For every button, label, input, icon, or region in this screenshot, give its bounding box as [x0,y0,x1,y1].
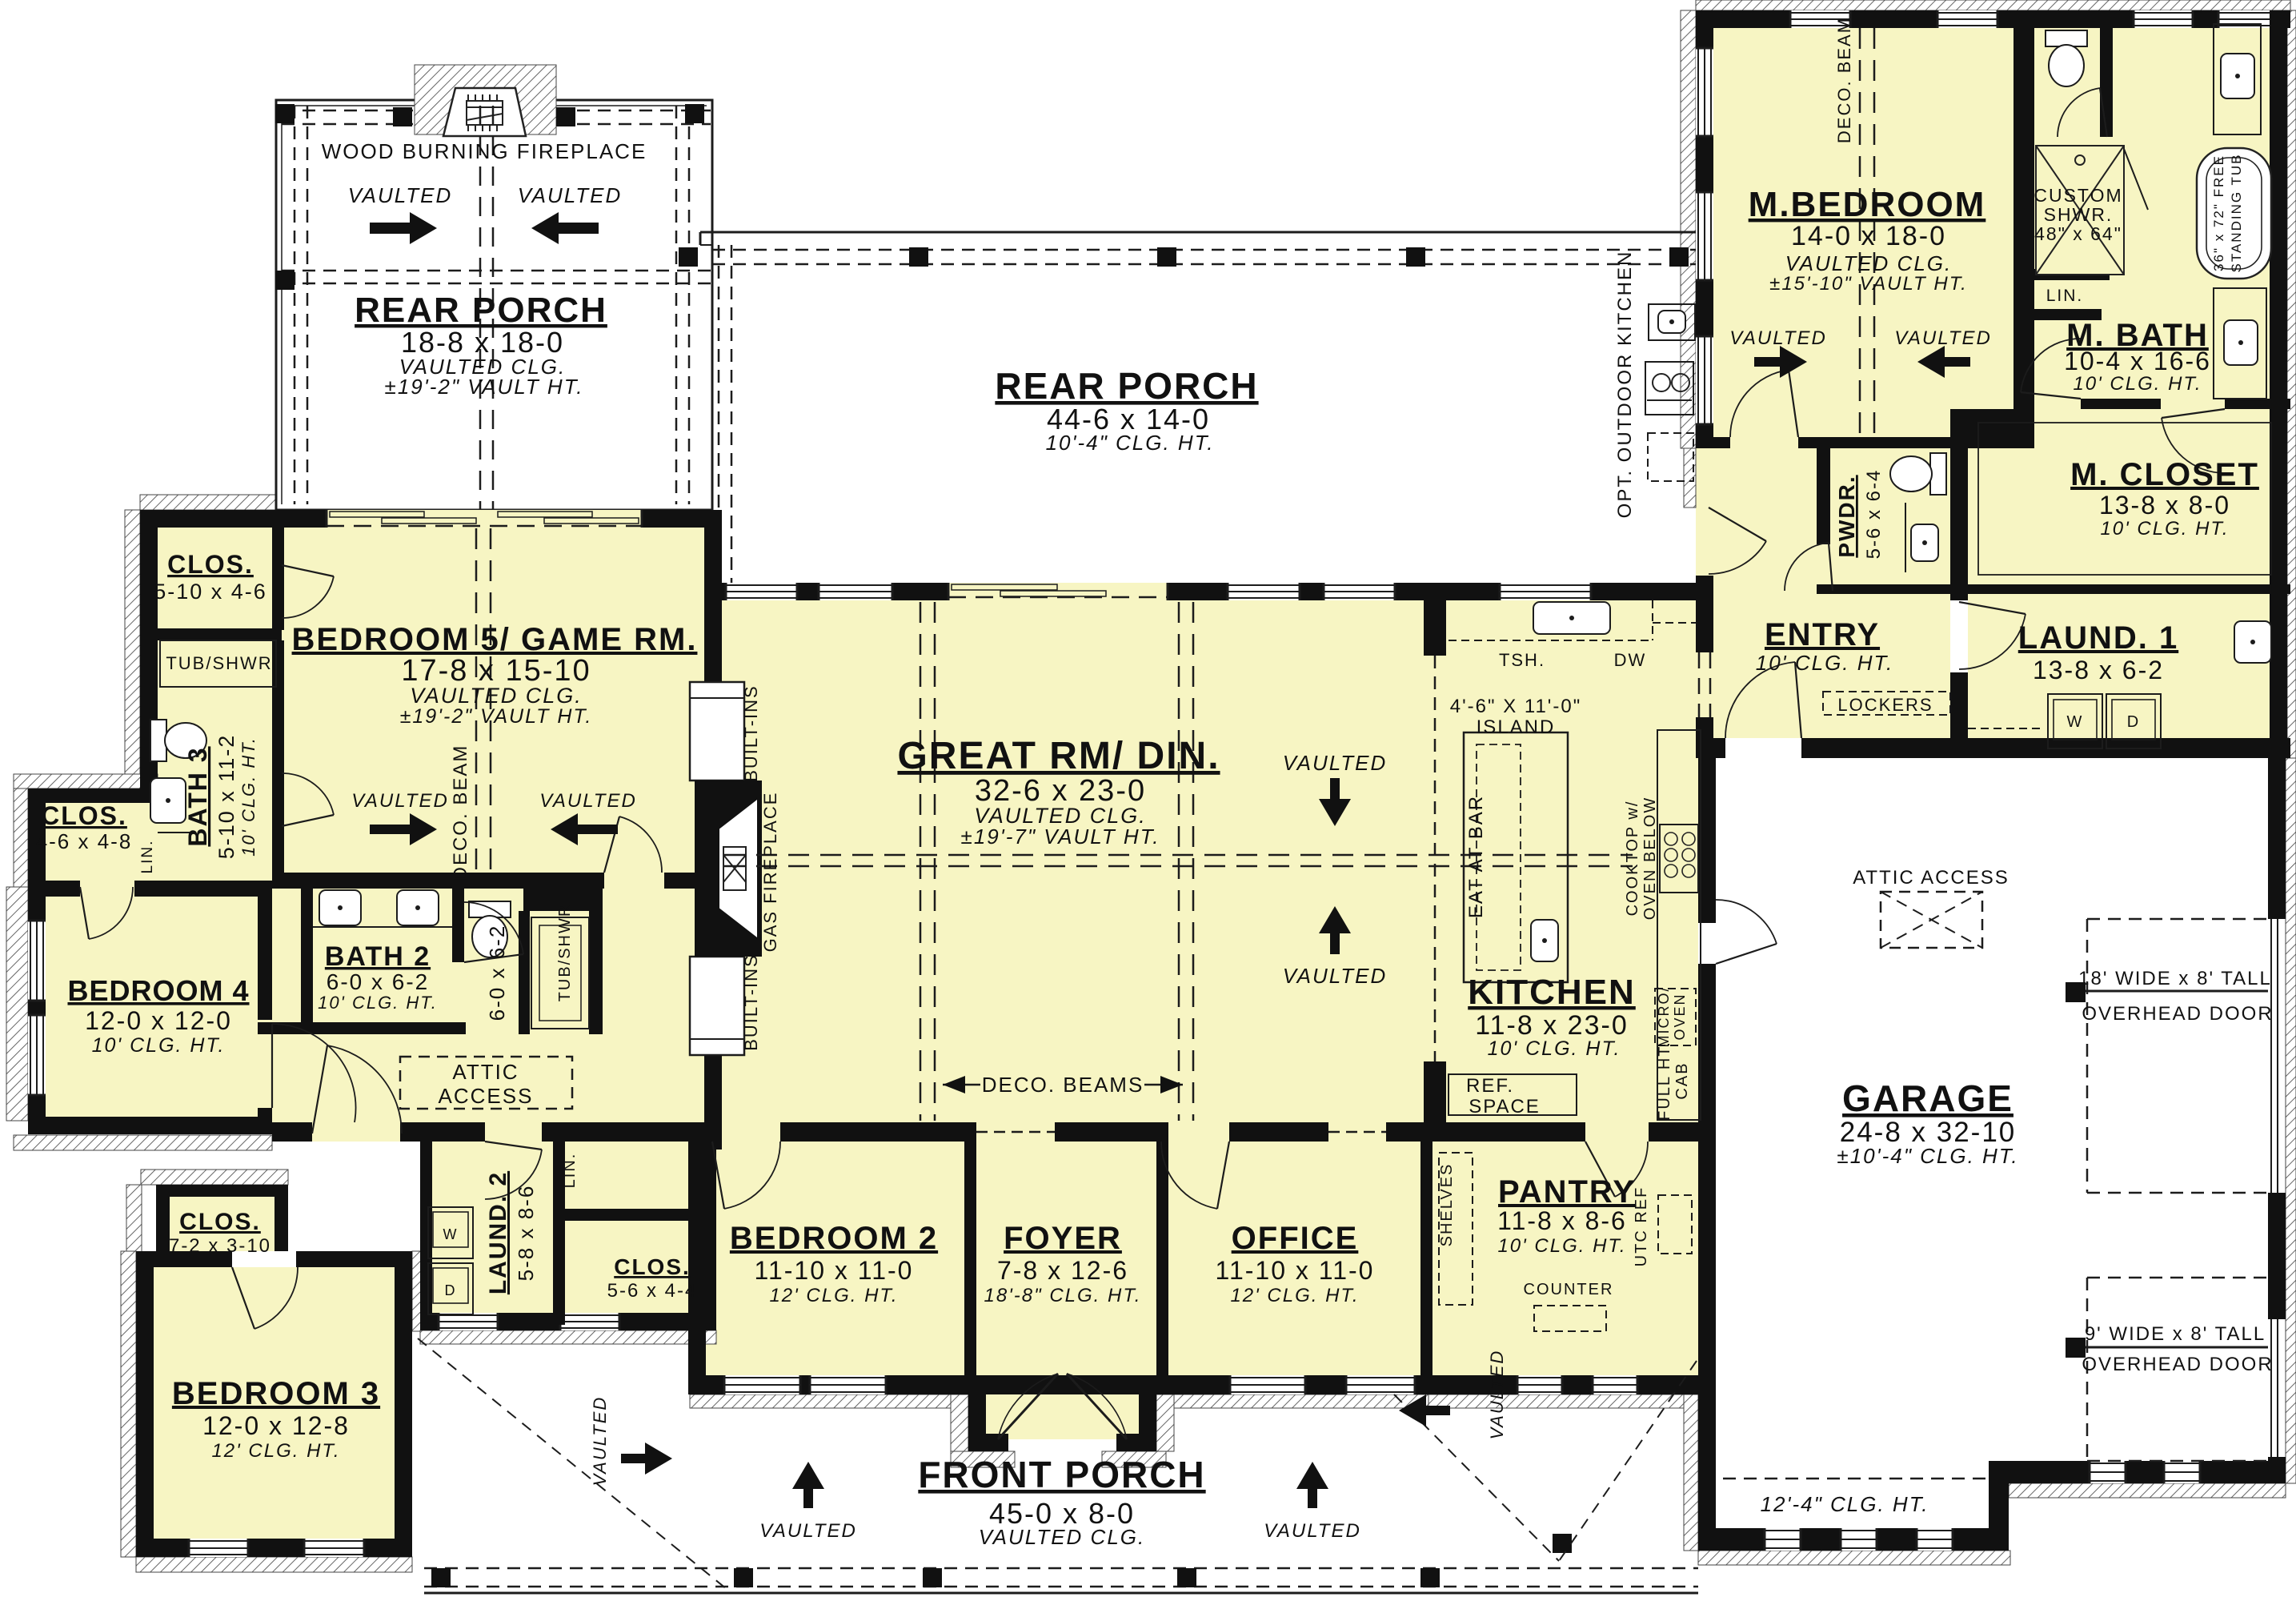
svg-text:18-8 x 18-0: 18-8 x 18-0 [401,326,564,359]
svg-text:10-4 x 16-6: 10-4 x 16-6 [2064,347,2211,375]
svg-text:BEDROOM 4: BEDROOM 4 [67,974,249,1007]
svg-text:7-2 x 3-10: 7-2 x 3-10 [169,1235,271,1257]
svg-text:FULL HT.: FULL HT. [1656,1041,1673,1121]
svg-text:VAULTED: VAULTED [539,790,637,812]
svg-text:UTC REF: UTC REF [1633,1186,1650,1267]
svg-text:11-10 x 11-0: 11-10 x 11-0 [755,1256,914,1285]
svg-text:W: W [2067,713,2084,731]
svg-text:12'-4" CLG. HT.: 12'-4" CLG. HT. [1761,1492,1929,1516]
svg-text:DECO. BEAM: DECO. BEAM [1834,17,1854,143]
svg-text:OVEN BELOW: OVEN BELOW [1641,796,1659,920]
svg-text:LIN.: LIN. [139,840,156,874]
svg-text:±19'-2" VAULT HT.: ±19'-2" VAULT HT. [385,375,584,399]
svg-text:PWDR.: PWDR. [1834,475,1859,557]
svg-text:±15'-10" VAULT HT.: ±15'-10" VAULT HT. [1769,273,1968,295]
svg-text:5-6 x 6-4: 5-6 x 6-4 [1863,469,1885,560]
svg-text:OVERHEAD DOOR: OVERHEAD DOOR [2082,1003,2273,1025]
svg-text:48" x 64": 48" x 64" [2034,223,2122,244]
svg-text:5-10 x 4-6: 5-10 x 4-6 [154,580,267,604]
svg-text:12-0 x 12-8: 12-0 x 12-8 [202,1411,350,1440]
svg-text:VAULTED: VAULTED [351,790,449,812]
svg-text:10' CLG. HT.: 10' CLG. HT. [318,993,438,1013]
svg-text:13-8 x 8-0: 13-8 x 8-0 [2099,491,2230,520]
svg-text:PANTRY: PANTRY [1498,1174,1636,1210]
svg-text:32-6 x 23-0: 32-6 x 23-0 [975,774,1146,808]
svg-text:VAULTED: VAULTED [1264,1520,1361,1542]
svg-text:GREAT RM/ DIN.: GREAT RM/ DIN. [897,735,1220,777]
svg-text:BATH 2: BATH 2 [325,941,431,972]
svg-text:10' CLG. HT.: 10' CLG. HT. [1497,1235,1626,1257]
svg-text:W: W [443,1226,459,1242]
svg-text:CLOS.: CLOS. [167,550,254,579]
svg-text:STANDING TUB: STANDING TUB [2229,154,2244,273]
svg-text:12-0 x 12-0: 12-0 x 12-0 [85,1006,232,1035]
svg-text:ATTIC: ATTIC [452,1060,519,1084]
svg-text:LAUND. 2: LAUND. 2 [485,1171,511,1294]
svg-text:6-0 x 6-2: 6-0 x 6-2 [327,969,430,994]
svg-text:4-6 x 4-8: 4-6 x 4-8 [36,829,133,853]
svg-text:M.BEDROOM: M.BEDROOM [1749,185,1986,224]
svg-text:TSH.: TSH. [1499,650,1545,670]
svg-text:36" x 72" FREE: 36" x 72" FREE [2211,154,2226,271]
svg-text:ACCESS: ACCESS [439,1084,534,1108]
svg-text:OFFICE: OFFICE [1232,1221,1359,1256]
svg-text:LOCKERS: LOCKERS [1837,695,1933,715]
svg-text:BUILT-INS: BUILT-INS [741,953,761,1051]
svg-text:13-8 x 6-2: 13-8 x 6-2 [2033,656,2164,684]
svg-text:LIN.: LIN. [2046,287,2084,305]
svg-text:COUNTER: COUNTER [1524,1281,1614,1298]
svg-text:VAULTED: VAULTED [1487,1350,1507,1440]
svg-text:18' WIDE x 8' TALL: 18' WIDE x 8' TALL [2078,968,2272,989]
svg-text:VAULTED: VAULTED [1283,964,1388,988]
svg-text:DW: DW [1614,650,1647,670]
svg-text:12' CLG. HT.: 12' CLG. HT. [769,1285,898,1306]
svg-text:12' CLG. HT.: 12' CLG. HT. [1230,1285,1359,1306]
svg-text:OPT. OUTDOOR KITCHEN: OPT. OUTDOOR KITCHEN [1614,251,1636,519]
svg-text:11-8 x 8-6: 11-8 x 8-6 [1497,1206,1627,1235]
svg-text:12' CLG. HT.: 12' CLG. HT. [211,1440,340,1462]
svg-text:5-10 x 11-2: 5-10 x 11-2 [214,734,238,860]
svg-text:REF.: REF. [1466,1075,1514,1097]
svg-text:OVEN: OVEN [1672,993,1688,1040]
svg-text:VAULTED: VAULTED [518,183,623,207]
svg-text:DECO. BEAM: DECO. BEAM [450,744,471,881]
svg-text:FOYER: FOYER [1004,1221,1122,1256]
svg-text:5-8 x 8-6: 5-8 x 8-6 [514,1185,538,1282]
svg-text:7-8 x 12-6: 7-8 x 12-6 [997,1256,1128,1285]
svg-text:±19'-2" VAULT HT.: ±19'-2" VAULT HT. [400,705,593,728]
svg-text:KITCHEN: KITCHEN [1468,973,1636,1012]
svg-text:SHWR.: SHWR. [2044,204,2114,225]
svg-text:BUILT-INS: BUILT-INS [741,684,761,782]
svg-text:10' CLG. HT.: 10' CLG. HT. [2100,518,2229,540]
svg-text:±10'-4" CLG. HT.: ±10'-4" CLG. HT. [1837,1144,2018,1168]
svg-text:18'-8" CLG. HT.: 18'-8" CLG. HT. [984,1285,1142,1306]
svg-text:MICRO/: MICRO/ [1656,986,1672,1048]
svg-text:ATTIC ACCESS: ATTIC ACCESS [1853,867,2010,889]
svg-text:REAR PORCH: REAR PORCH [995,365,1258,407]
svg-text:CLOS.: CLOS. [41,801,127,830]
svg-text:10' CLG. HT.: 10' CLG. HT. [92,1034,226,1057]
svg-text:10' CLG. HT.: 10' CLG. HT. [1756,651,1894,675]
svg-text:BEDROOM 5/ GAME RM.: BEDROOM 5/ GAME RM. [292,622,698,657]
svg-text:CLOS.: CLOS. [179,1209,261,1235]
svg-text:VAULTED: VAULTED [1894,327,1992,349]
svg-text:11-10 x 11-0: 11-10 x 11-0 [1216,1256,1375,1285]
svg-text:LIN.: LIN. [561,1153,579,1189]
svg-text:LAUND. 1: LAUND. 1 [2018,620,2178,656]
svg-text:OVERHEAD DOOR: OVERHEAD DOOR [2082,1354,2273,1375]
svg-text:CLOS.: CLOS. [614,1254,691,1279]
svg-text:6-0 x 6-2: 6-0 x 6-2 [485,925,509,1021]
svg-text:M. CLOSET: M. CLOSET [2070,457,2259,492]
svg-text:BEDROOM 2: BEDROOM 2 [730,1221,938,1256]
svg-text:17-8 x 15-10: 17-8 x 15-10 [401,654,591,688]
svg-text:10' CLG. HT.: 10' CLG. HT. [1488,1037,1621,1060]
svg-text:10' CLG. HT.: 10' CLG. HT. [238,736,258,857]
svg-text:GARAGE: GARAGE [1842,1077,2014,1119]
svg-text:5-6 x 4-4: 5-6 x 4-4 [607,1280,698,1302]
svg-text:VAULTED: VAULTED [1283,751,1388,775]
svg-text:SHELVES: SHELVES [1438,1163,1456,1247]
svg-text:GAS FIREPLACE: GAS FIREPLACE [760,792,780,953]
svg-text:±19'-7" VAULT HT.: ±19'-7" VAULT HT. [961,825,1160,849]
svg-text:VAULTED CLG.: VAULTED CLG. [410,684,583,708]
svg-text:11-8 x 23-0: 11-8 x 23-0 [1475,1010,1628,1041]
svg-text:TUB/SHWR: TUB/SHWR [166,653,272,673]
svg-text:D: D [2127,713,2140,731]
svg-text:CUSTOM: CUSTOM [2034,185,2122,206]
svg-text:ISLAND: ISLAND [1477,716,1556,738]
svg-text:14-0 x 18-0: 14-0 x 18-0 [1791,221,1946,251]
svg-text:VAULTED CLG.: VAULTED CLG. [1785,251,1952,275]
svg-text:10' CLG. HT.: 10' CLG. HT. [2073,373,2202,395]
svg-text:9' WIDE x 8' TALL: 9' WIDE x 8' TALL [2085,1323,2266,1345]
svg-text:VAULTED: VAULTED [590,1396,610,1487]
svg-text:VAULTED: VAULTED [348,183,453,207]
svg-text:TUB/SHWR: TUB/SHWR [556,904,574,1002]
svg-text:FRONT PORCH: FRONT PORCH [918,1454,1205,1495]
svg-text:CAB: CAB [1673,1061,1691,1099]
svg-text:VAULTED: VAULTED [759,1520,857,1542]
svg-text:ENTRY: ENTRY [1765,617,1880,652]
svg-text:WOOD BURNING FIREPLACE: WOOD BURNING FIREPLACE [322,139,647,163]
svg-text:VAULTED CLG.: VAULTED CLG. [979,1525,1145,1549]
svg-text:4'-6" X 11'-0": 4'-6" X 11'-0" [1450,696,1582,717]
svg-text:REAR PORCH: REAR PORCH [355,291,607,330]
svg-text:VAULTED: VAULTED [1729,327,1827,349]
svg-text:10'-4" CLG. HT.: 10'-4" CLG. HT. [1046,431,1215,455]
svg-text:BATH 3: BATH 3 [183,746,212,846]
svg-text:D: D [445,1282,457,1298]
svg-text:COOKTOP w/: COOKTOP w/ [1624,800,1641,917]
svg-text:SPACE: SPACE [1469,1096,1541,1117]
svg-text:BEDROOM 3: BEDROOM 3 [172,1376,380,1411]
svg-text:DECO. BEAMS: DECO. BEAMS [982,1073,1144,1097]
svg-text:EAT AT BAR: EAT AT BAR [1465,795,1487,918]
